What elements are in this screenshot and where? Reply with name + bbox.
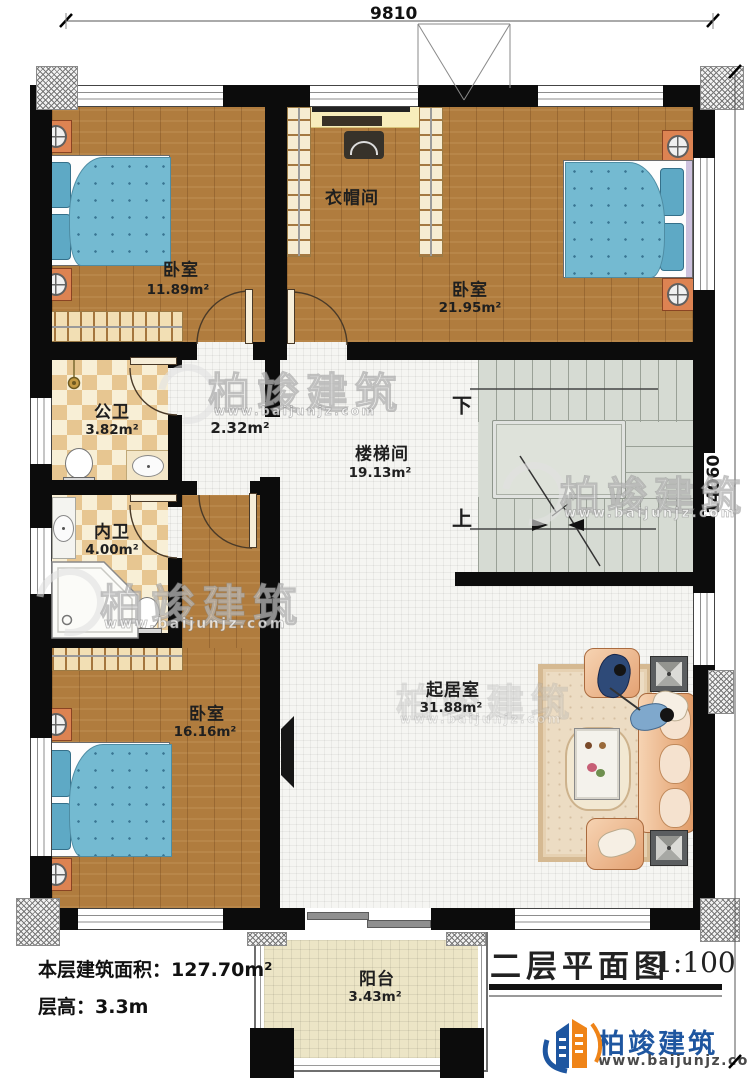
room-label: 楼梯间 — [355, 440, 409, 465]
brand-url: www.baijunjz.com — [598, 1053, 750, 1069]
coffee-table — [574, 728, 620, 800]
room-area: 19.13m² — [349, 465, 412, 481]
wall-segment — [418, 85, 538, 107]
right-dimension-label: 14060 — [704, 453, 724, 516]
person-head — [614, 664, 626, 676]
plan-title: 二层平面图 — [490, 941, 670, 986]
plan-scale: 1:100 — [655, 946, 736, 979]
wall-segment — [30, 594, 52, 738]
cup — [585, 742, 592, 749]
lamp-icon — [667, 283, 689, 306]
side-table-top — [656, 836, 682, 860]
stool-cushion — [350, 141, 378, 155]
room-label: 阳台 — [359, 965, 395, 990]
wardrobe — [40, 311, 183, 342]
window — [30, 398, 52, 464]
top-dimension-label: 9810 — [366, 4, 421, 24]
wall-segment — [693, 290, 715, 593]
sliding-door-panel — [367, 920, 431, 928]
wall-segment — [223, 908, 305, 930]
side-table — [650, 656, 688, 692]
sink — [53, 515, 74, 542]
side-table-top — [656, 662, 682, 686]
flower — [596, 769, 605, 777]
balcony-post — [250, 1028, 294, 1078]
floor-plan-page: 9810 14060 — [0, 0, 750, 1088]
cosmetics-tray — [322, 116, 382, 126]
headboard — [686, 161, 692, 277]
door-leaf — [130, 494, 177, 502]
room-label: 公卫 — [94, 398, 130, 423]
stair-treads-upper — [478, 360, 693, 422]
nightstand — [662, 130, 694, 163]
window — [538, 85, 663, 107]
stair-up-label: 上 — [452, 503, 472, 532]
sliding-door — [305, 908, 431, 930]
room-area: 16.16m² — [174, 724, 237, 740]
column-hatch — [700, 66, 744, 110]
window — [77, 85, 223, 107]
side-table — [650, 830, 688, 866]
stair-treads-lower — [478, 497, 693, 572]
closet-rack — [287, 107, 311, 257]
title-rule-thick — [489, 984, 722, 990]
door-leaf — [245, 289, 253, 344]
room-area: 3.43m² — [348, 989, 401, 1005]
window — [515, 908, 650, 930]
lamp-icon — [667, 135, 689, 158]
column-hatch — [36, 66, 78, 110]
brand-logo-icon — [545, 1019, 600, 1071]
stool — [344, 131, 384, 159]
double-bed — [563, 160, 693, 278]
floor-area-note: 本层建筑面积：127.70m² — [38, 955, 272, 982]
duvet — [565, 162, 665, 278]
room-label: 卧室 — [452, 276, 488, 301]
wall-segment — [265, 107, 287, 342]
title-rule-thin — [489, 995, 722, 997]
window — [310, 85, 418, 107]
wall-segment — [265, 360, 280, 417]
wall-segment — [347, 342, 715, 360]
wall-segment — [455, 572, 715, 586]
sink — [132, 455, 164, 477]
room-label: 卧室 — [163, 256, 199, 281]
window — [30, 738, 52, 856]
double-bed — [38, 742, 170, 857]
duvet — [69, 157, 171, 266]
column-hatch — [247, 932, 287, 946]
door-leaf — [249, 493, 257, 548]
sliding-door-panel — [307, 912, 369, 920]
room-label: 内卫 — [94, 518, 130, 543]
floor-height-note: 层高：3.3m — [38, 992, 148, 1019]
wall-segment — [168, 415, 182, 480]
sofa-cushion — [659, 788, 691, 828]
window — [693, 158, 715, 290]
window — [30, 528, 52, 594]
window — [693, 593, 715, 665]
wall-segment — [223, 85, 310, 107]
wall-segment — [30, 480, 182, 495]
wall-segment — [431, 908, 515, 930]
column-hatch — [708, 670, 734, 714]
person-head — [660, 708, 674, 722]
room-area: 11.89m² — [147, 282, 210, 298]
column-hatch — [446, 932, 486, 946]
stair-down-label: 下 — [452, 390, 472, 419]
column-hatch — [16, 898, 60, 946]
column-hatch — [700, 898, 740, 942]
room-area: 31.88m² — [420, 700, 483, 716]
toilet — [134, 597, 160, 630]
door-leaf — [287, 289, 295, 344]
wall-segment — [30, 633, 182, 648]
room-area: 2.32m² — [210, 419, 269, 437]
balcony-post — [440, 1028, 484, 1078]
sofa-cushion — [659, 744, 691, 784]
closet-rack — [419, 107, 443, 257]
window — [78, 908, 223, 930]
room-label: 卧室 — [189, 700, 225, 725]
room-area: 21.95m² — [439, 300, 502, 316]
room-area: 3.82m² — [85, 422, 138, 438]
stair-landing — [492, 420, 626, 499]
room-area: 4.00m² — [85, 542, 138, 558]
room-label: 起居室 — [426, 676, 480, 701]
wall-segment — [253, 342, 287, 360]
nightstand — [662, 278, 694, 311]
door-leaf — [130, 357, 177, 365]
stair-treads-right — [626, 420, 693, 499]
room-label: 衣帽间 — [325, 184, 379, 209]
wall-segment — [30, 464, 52, 528]
double-bed — [38, 155, 170, 266]
wall-segment — [182, 481, 197, 495]
toilet — [65, 448, 93, 479]
duvet — [69, 744, 172, 857]
cup — [599, 742, 606, 749]
wall-segment — [260, 477, 280, 908]
